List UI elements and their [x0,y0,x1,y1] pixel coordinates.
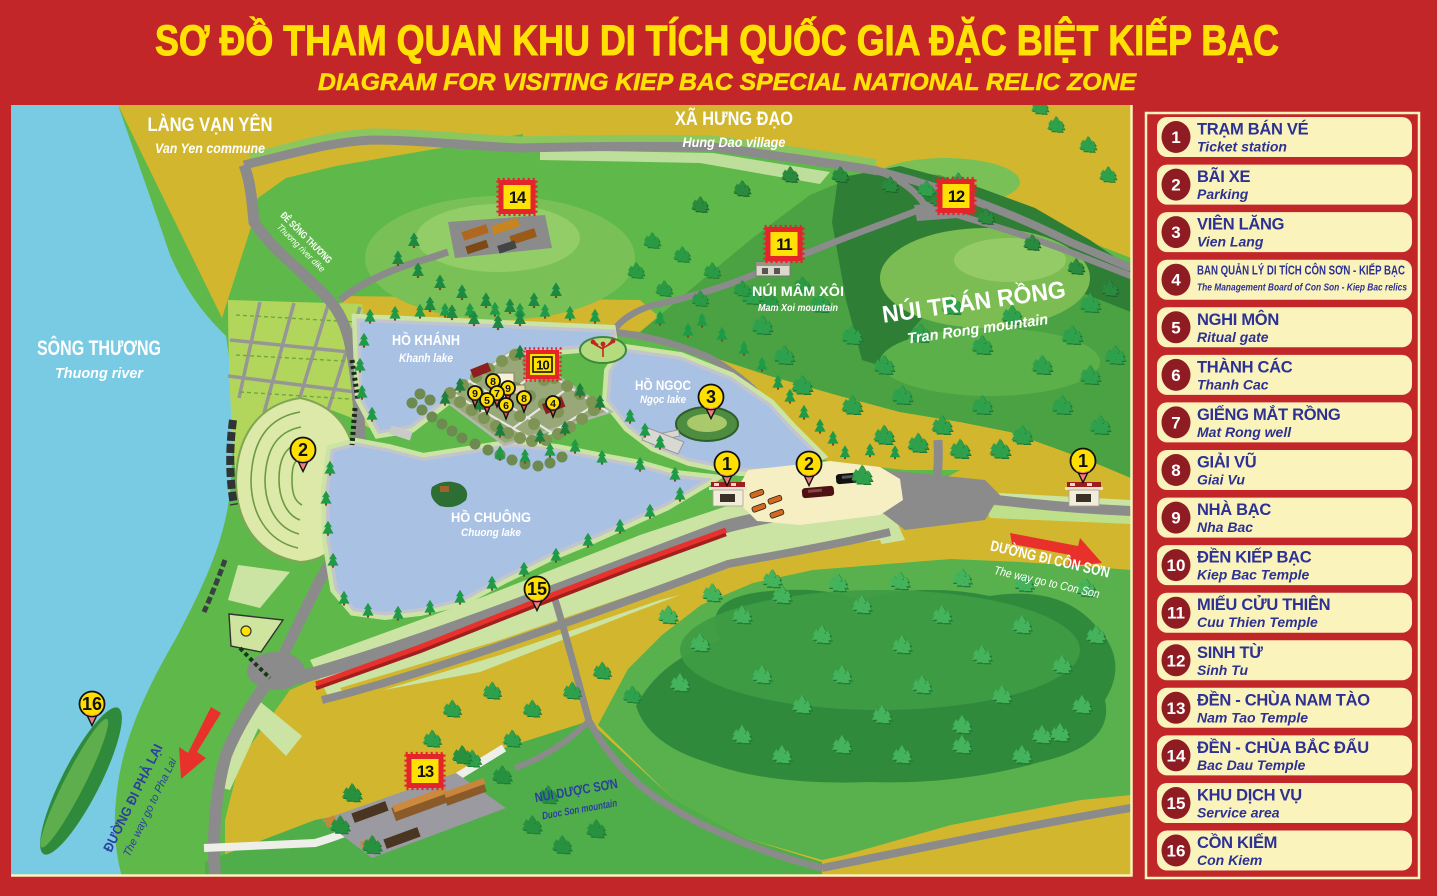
svg-text:4: 4 [550,398,556,410]
svg-text:Chuong lake: Chuong lake [461,527,521,539]
svg-text:Giai Vu: Giai Vu [1197,472,1245,488]
svg-text:12: 12 [1167,651,1186,670]
svg-text:1: 1 [1171,128,1180,147]
svg-text:LÀNG VẠN YÊN: LÀNG VẠN YÊN [148,114,273,136]
svg-text:9: 9 [1171,509,1180,528]
svg-text:14: 14 [509,189,527,207]
svg-text:KHU DỊCH VỤ: KHU DỊCH VỤ [1197,787,1302,805]
svg-text:The Management Board of Con So: The Management Board of Con Son - Kiep B… [1197,282,1407,294]
svg-text:GIẢI VŨ: GIẢI VŨ [1197,452,1256,472]
svg-text:13: 13 [1167,699,1186,718]
svg-text:9: 9 [472,388,478,400]
svg-text:Ticket station: Ticket station [1197,139,1287,155]
svg-text:VIÊN LĂNG: VIÊN LĂNG [1197,215,1284,234]
svg-text:Thanh Cac: Thanh Cac [1197,376,1269,392]
svg-text:9: 9 [505,383,511,395]
svg-text:TRẠM BÁN VÉ: TRẠM BÁN VÉ [1197,120,1309,139]
svg-text:4: 4 [1171,271,1181,290]
svg-text:16: 16 [82,694,102,714]
svg-text:3: 3 [1171,223,1180,242]
svg-text:10: 10 [1167,556,1186,575]
svg-text:NGHI MÔN: NGHI MÔN [1197,310,1279,329]
svg-text:15: 15 [1167,794,1186,813]
svg-text:HỒ KHÁNH: HỒ KHÁNH [392,331,460,349]
svg-text:10: 10 [536,358,549,373]
svg-text:BAN QUẢN LÝ DI TÍCH CÔN SƠN -: BAN QUẢN LÝ DI TÍCH CÔN SƠN - KIẾP BẠC [1197,263,1405,278]
svg-text:NÚI MÂM XÔI: NÚI MÂM XÔI [752,282,844,299]
svg-text:12: 12 [948,188,965,206]
svg-text:SƠ ĐỒ THAM QUAN KHU DI TÍCH QU: SƠ ĐỒ THAM QUAN KHU DI TÍCH QUỐC GIA ĐẶC… [155,16,1279,65]
svg-text:13: 13 [417,763,434,781]
svg-text:Thuong river: Thuong river [55,365,144,382]
svg-text:7: 7 [1171,413,1180,432]
svg-text:11: 11 [776,236,792,254]
svg-text:3: 3 [706,387,716,407]
svg-text:Hung Dao village: Hung Dao village [683,134,786,150]
svg-text:11: 11 [1167,604,1185,623]
svg-text:HỒ CHUÔNG: HỒ CHUÔNG [451,508,531,525]
svg-text:1: 1 [722,454,732,474]
svg-text:DIAGRAM FOR VISITING KIEP BAC: DIAGRAM FOR VISITING KIEP BAC SPECIAL NA… [318,69,1137,96]
svg-text:Bac Dau Temple: Bac Dau Temple [1197,757,1306,773]
svg-text:Kiep Bac Temple: Kiep Bac Temple [1197,567,1310,583]
svg-text:7: 7 [494,388,500,400]
svg-text:Con Kiem: Con Kiem [1197,852,1262,868]
svg-text:SÔNG THƯƠNG: SÔNG THƯƠNG [37,336,161,360]
svg-text:Mat Rong well: Mat Rong well [1197,424,1292,440]
svg-text:2: 2 [298,440,308,460]
svg-text:NHÀ BẠC: NHÀ BẠC [1197,500,1271,519]
svg-text:Parking: Parking [1197,186,1249,202]
svg-text:Mam Xoi mountain: Mam Xoi mountain [758,302,838,314]
svg-text:Sinh Tu: Sinh Tu [1197,662,1249,678]
svg-text:5: 5 [484,395,490,407]
svg-text:Khanh lake: Khanh lake [399,351,453,365]
svg-text:16: 16 [1167,842,1186,861]
svg-text:Ritual gate: Ritual gate [1197,329,1269,345]
svg-text:BÃI XE: BÃI XE [1197,166,1251,186]
svg-text:Vien Lang: Vien Lang [1197,234,1264,250]
svg-text:Service area: Service area [1197,805,1280,821]
svg-text:MIẾU CỬU THIÊN: MIẾU CỬU THIÊN [1197,595,1330,614]
svg-text:ĐỀN - CHÙA NAM TÀO: ĐỀN - CHÙA NAM TÀO [1197,690,1370,709]
svg-text:Nam Tao Temple: Nam Tao Temple [1197,709,1308,725]
svg-text:ĐỀN KIẾP BẠC: ĐỀN KIẾP BẠC [1197,548,1312,567]
svg-text:Nha Bac: Nha Bac [1197,519,1253,535]
svg-text:15: 15 [527,579,547,599]
svg-text:Cuu Thien Temple: Cuu Thien Temple [1197,614,1318,630]
svg-text:6: 6 [1171,366,1180,385]
svg-text:2: 2 [804,454,814,474]
svg-text:14: 14 [1167,746,1186,765]
svg-text:XÃ HƯNG ĐẠO: XÃ HƯNG ĐẠO [675,108,793,130]
svg-text:5: 5 [1171,318,1180,337]
svg-text:SINH TỪ: SINH TỪ [1197,643,1263,662]
svg-text:ĐỀN - CHÙA BẮC ĐẨU: ĐỀN - CHÙA BẮC ĐẨU [1197,738,1369,757]
svg-text:CỒN KIẾM: CỒN KIẾM [1197,833,1277,852]
svg-text:1: 1 [1078,451,1088,471]
svg-text:Van Yen commune: Van Yen commune [155,140,265,156]
svg-text:THÀNH CÁC: THÀNH CÁC [1197,357,1293,376]
svg-text:6: 6 [503,400,509,412]
svg-text:8: 8 [521,393,527,405]
svg-text:HỒ NGỌC: HỒ NGỌC [635,376,691,393]
svg-text:Ngọc lake: Ngọc lake [640,394,686,406]
svg-text:GIẾNG MẮT RỒNG: GIẾNG MẮT RỒNG [1197,405,1340,424]
svg-text:8: 8 [1171,461,1180,480]
svg-text:2: 2 [1171,176,1180,195]
